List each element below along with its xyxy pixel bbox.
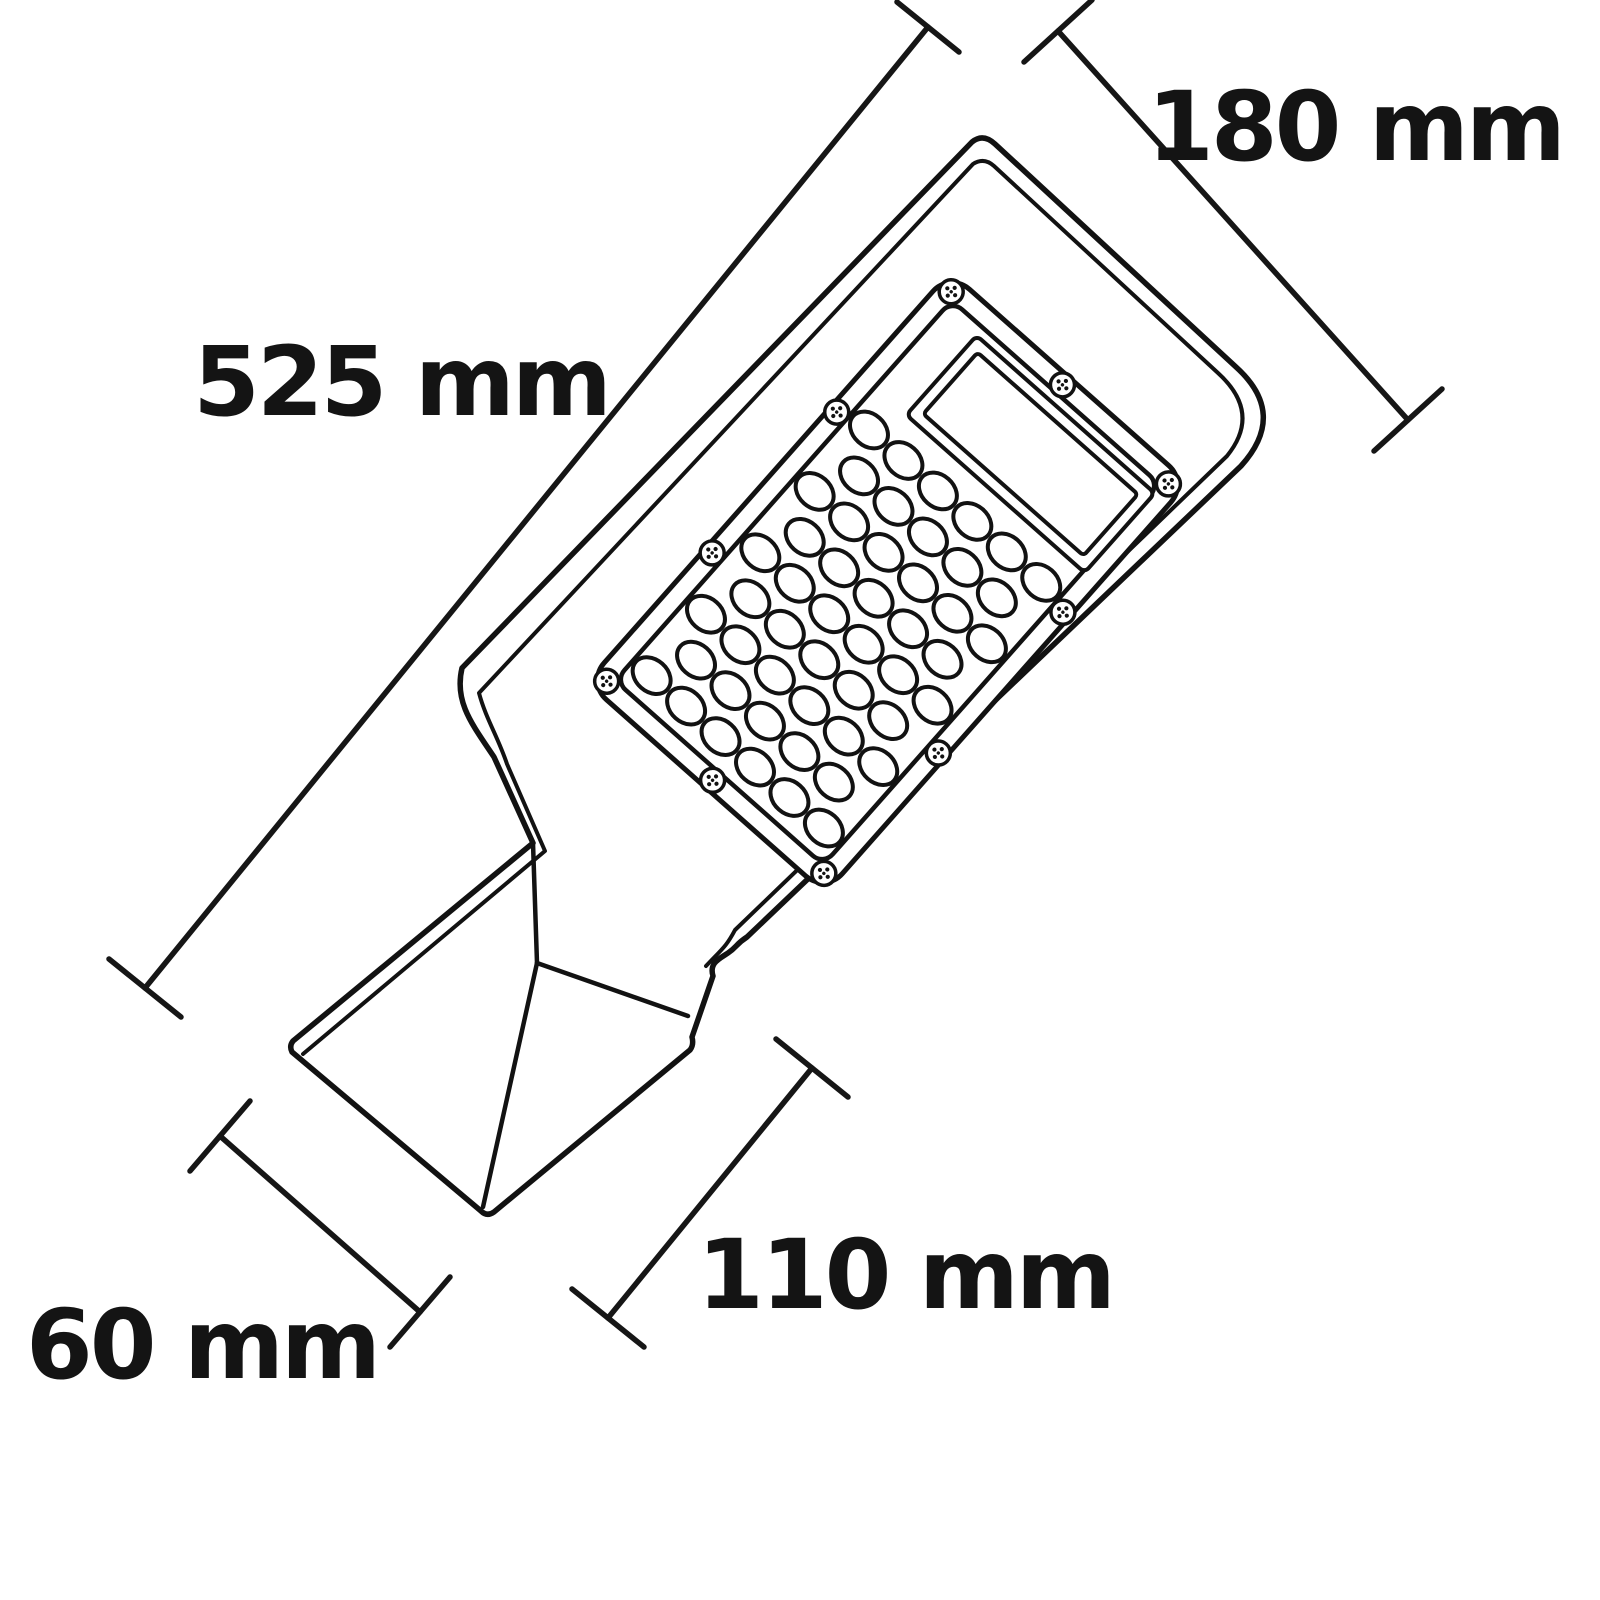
dimension-tick — [572, 1289, 644, 1347]
dimension-line — [220, 1136, 420, 1312]
dimension-tick — [1374, 389, 1442, 451]
dimension-tick — [190, 1101, 250, 1171]
dimension-label-mount-length: 110 mm — [697, 1219, 1113, 1331]
dimension-label-mount-diameter: 60 mm — [26, 1289, 378, 1401]
dimension-tick — [776, 1039, 848, 1097]
dimension-tick — [390, 1277, 450, 1347]
dimension-mount-diameter: 60 mm — [26, 1101, 450, 1401]
diagram-canvas: 525 mm 180 mm 110 mm 60 mm — [0, 0, 1600, 1600]
dimension-label-body-length: 525 mm — [193, 326, 609, 438]
dimension-tick — [1024, 0, 1092, 62]
dimension-tick — [109, 959, 181, 1017]
dimension-tick — [897, 2, 959, 52]
dimension-mount-length: 110 mm — [572, 1039, 1113, 1347]
street-light-diagram: 525 mm 180 mm 110 mm 60 mm — [0, 0, 1600, 1600]
dimension-label-head-width: 180 mm — [1147, 71, 1563, 183]
